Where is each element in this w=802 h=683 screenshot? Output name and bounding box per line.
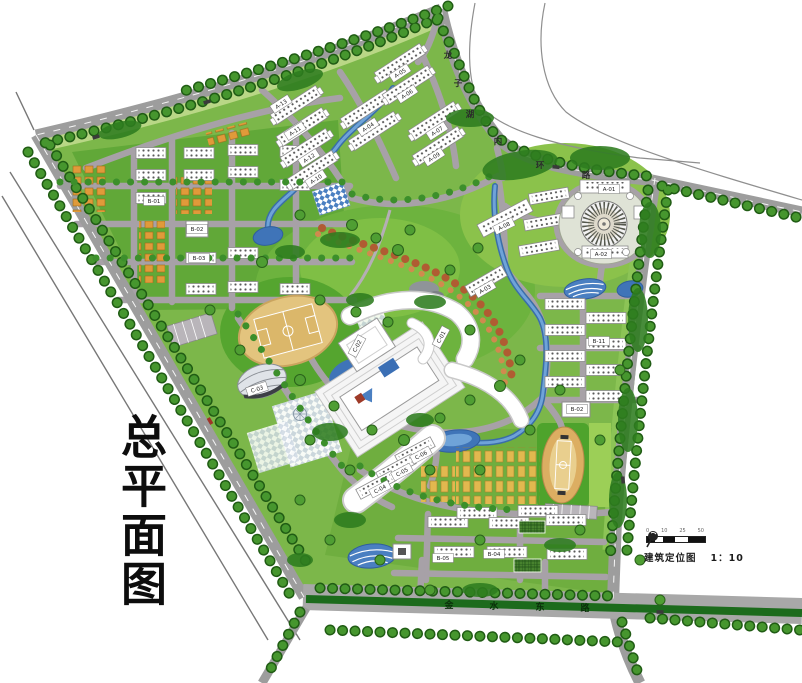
svg-text:A-02: A-02 xyxy=(595,252,608,258)
court xyxy=(514,559,541,572)
road-name-char: 龙 xyxy=(443,50,453,61)
masterplan-page: 龙子湖内环路 金水东路 A-13A-11A-12A-10A-04A-05A-06… xyxy=(0,0,802,683)
building-label: B-04 xyxy=(484,550,505,559)
svg-text:B-05: B-05 xyxy=(437,556,450,562)
road-name-char: 东 xyxy=(535,601,544,613)
road-name-char: 水 xyxy=(489,600,499,612)
building-label: A-02 xyxy=(591,250,612,259)
court xyxy=(519,521,545,533)
road-name-char: 金 xyxy=(443,599,454,611)
road-name-char: 湖 xyxy=(466,109,475,120)
legend-scale: 1：10 xyxy=(711,553,744,564)
svg-text:B-04: B-04 xyxy=(488,552,501,558)
road-name-char: 环 xyxy=(536,161,545,171)
svg-text:A-01: A-01 xyxy=(603,187,616,193)
page-title: 总平面图 xyxy=(118,413,164,609)
road-name-char: 路 xyxy=(580,602,590,614)
scale-tick: 10 xyxy=(661,528,667,534)
legend-map-name: 建筑定位图 xyxy=(644,553,697,564)
north-arrow-icon xyxy=(642,528,662,548)
scale-tick: 25 xyxy=(679,528,685,534)
building-label: B-03 xyxy=(189,254,210,263)
svg-text:B-03: B-03 xyxy=(193,256,206,262)
road-name-char: 路 xyxy=(582,170,591,181)
road-name-char: 子 xyxy=(454,79,463,89)
building-label: A-01 xyxy=(599,185,620,194)
svg-text:B-02: B-02 xyxy=(571,407,584,413)
scale-tick: 50 xyxy=(698,528,704,534)
svg-text:B-11: B-11 xyxy=(593,339,606,345)
building-label: B-11 xyxy=(589,337,610,346)
svg-text:B-02: B-02 xyxy=(191,227,204,233)
svg-text:B-01: B-01 xyxy=(148,199,161,205)
building-label: B-02 xyxy=(187,225,208,234)
road-name-char: 内 xyxy=(494,136,503,147)
building-label: B-01 xyxy=(144,197,165,206)
building-label: B-05 xyxy=(433,554,454,563)
building-label: B-02 xyxy=(567,405,588,414)
